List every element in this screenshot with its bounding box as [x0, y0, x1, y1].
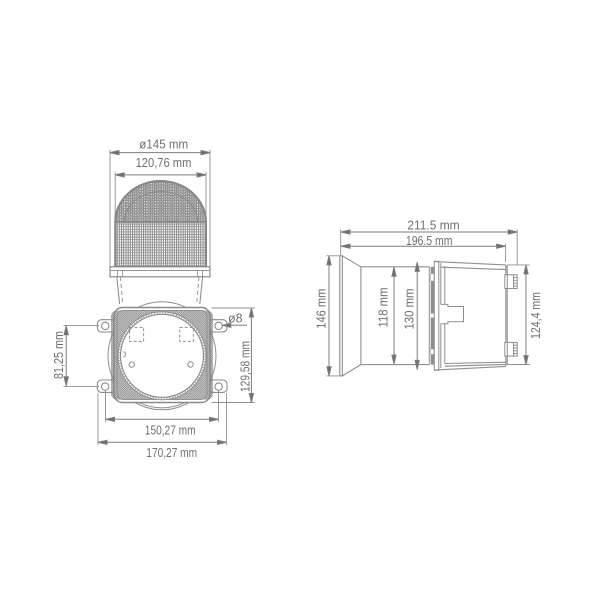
svg-text:118 mm: 118 mm	[377, 288, 391, 328]
svg-text:130 mm: 130 mm	[403, 289, 417, 330]
svg-text:81,25 mm: 81,25 mm	[52, 331, 66, 379]
svg-text:ø8: ø8	[228, 312, 243, 326]
svg-text:124,4 mm: 124,4 mm	[529, 292, 543, 339]
svg-text:146 mm: 146 mm	[315, 289, 329, 329]
svg-text:170,27 mm: 170,27 mm	[146, 446, 197, 460]
svg-text:120,76 mm: 120,76 mm	[136, 156, 192, 170]
svg-text:ø145 mm: ø145 mm	[139, 137, 188, 151]
svg-text:150,27 mm: 150,27 mm	[145, 424, 196, 438]
svg-text:211.5 mm: 211.5 mm	[407, 218, 459, 232]
svg-text:129,58 mm: 129,58 mm	[239, 341, 253, 392]
